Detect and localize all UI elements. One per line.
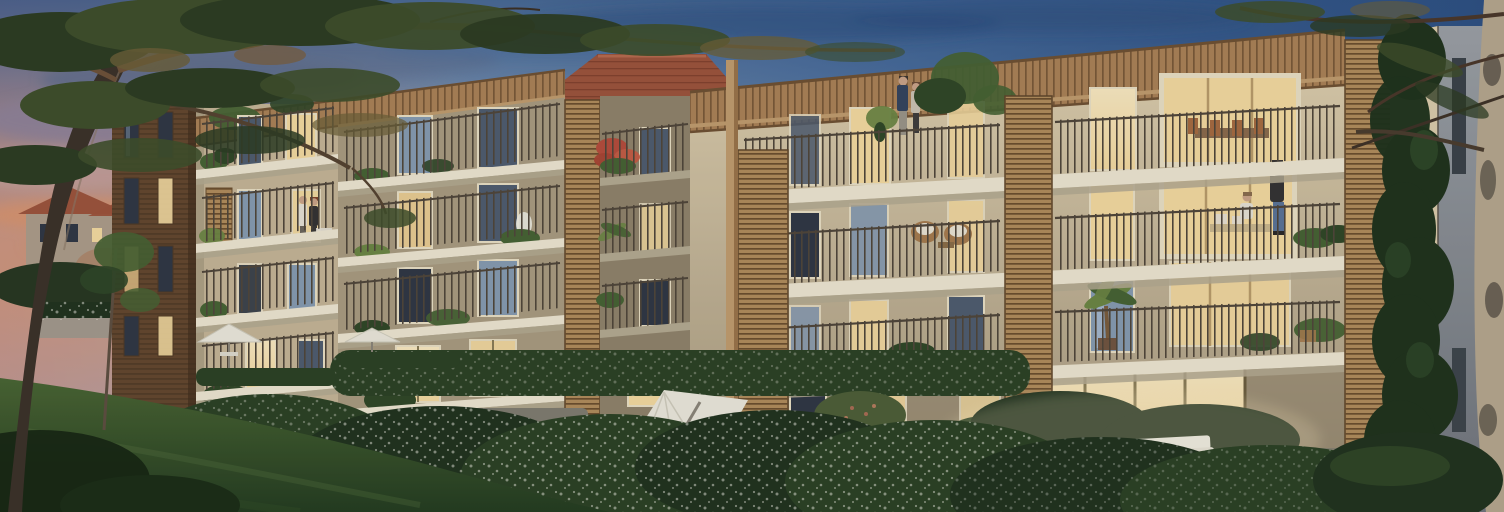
scene-canvas (0, 0, 1504, 512)
dusk-apartment-rendering (0, 0, 1504, 512)
dusk-color-grade (0, 0, 1504, 512)
